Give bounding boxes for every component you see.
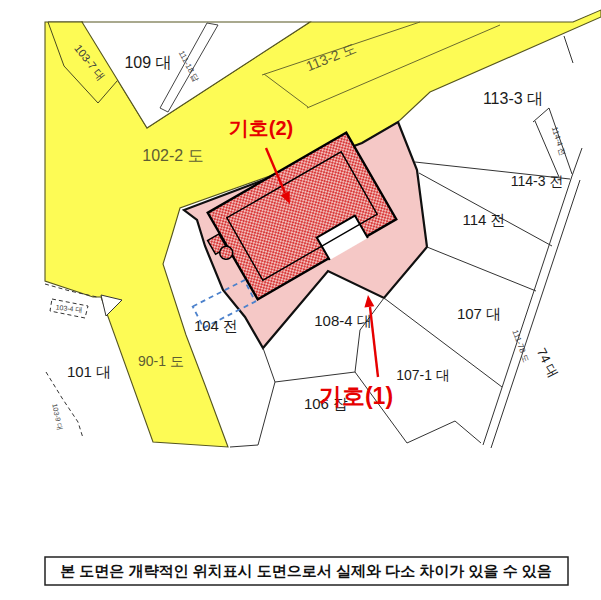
label-103-4: 103-4 대 (55, 304, 82, 314)
label-108-4: 108-4 대 (314, 312, 372, 329)
marker-1-arrowhead (364, 295, 374, 307)
label-102-2: 102-2 도 (142, 147, 203, 164)
label-114: 114 전 (462, 211, 505, 228)
label-104: 104 전 (194, 317, 238, 334)
label-113-3: 113-3 대 (483, 90, 543, 107)
label-74: 74 대 (534, 346, 561, 381)
marker-1-label: 기호(1) (319, 383, 393, 409)
label-114-4: 114-4 전 (550, 125, 567, 156)
label-109: 109 대 (124, 54, 171, 71)
disclaimer-box: 본 도면은 개략적인 위치표시 도면으로서 실제와 다소 차이가 있을 수 있음 (45, 557, 568, 585)
label-103-9: 103-9 대 (51, 403, 63, 431)
label-114-3: 114-3 전 (511, 173, 564, 189)
label-101: 101 대 (67, 363, 111, 380)
label-107: 107 대 (457, 305, 501, 322)
label-111-78: 111-78 도 (510, 329, 530, 364)
marker-2-label: 기호(2) (229, 117, 293, 139)
label-107-1: 107-1 대 (396, 367, 450, 383)
map-canvas: 109 대 103-7 대 111-18 답 113-2 도 102-2 도 1… (0, 0, 601, 600)
label-90-1: 90-1 도 (138, 353, 184, 369)
disclaimer-text: 본 도면은 개략적인 위치표시 도면으로서 실제와 다소 차이가 있을 수 있음 (60, 562, 552, 579)
cadastral-map: 109 대 103-7 대 111-18 답 113-2 도 102-2 도 1… (0, 0, 601, 600)
marker-1-arrow-line (370, 307, 378, 377)
